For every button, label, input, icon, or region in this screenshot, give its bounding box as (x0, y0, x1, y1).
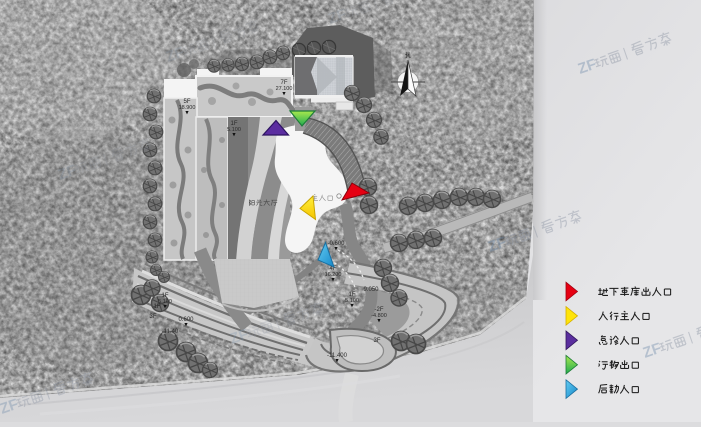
svg-text:16.200: 16.200 (325, 272, 342, 278)
svg-text:0.600: 0.600 (178, 317, 194, 323)
svg-text:9.050: 9.050 (363, 287, 379, 293)
svg-text:1F: 1F (153, 304, 160, 310)
svg-text:-4.800: -4.800 (371, 313, 387, 319)
svg-text:5.100: 5.100 (227, 127, 241, 133)
svg-text:3F: 3F (373, 338, 380, 344)
svg-text:18.900: 18.900 (179, 105, 196, 111)
svg-text:-0.600: -0.600 (327, 241, 345, 247)
svg-text:-11.40: -11.40 (162, 329, 179, 335)
svg-text:-11.400: -11.400 (327, 353, 348, 359)
svg-text:27.100: 27.100 (276, 86, 293, 92)
svg-text:3F: 3F (149, 314, 156, 320)
svg-text:5.100: 5.100 (345, 298, 359, 304)
